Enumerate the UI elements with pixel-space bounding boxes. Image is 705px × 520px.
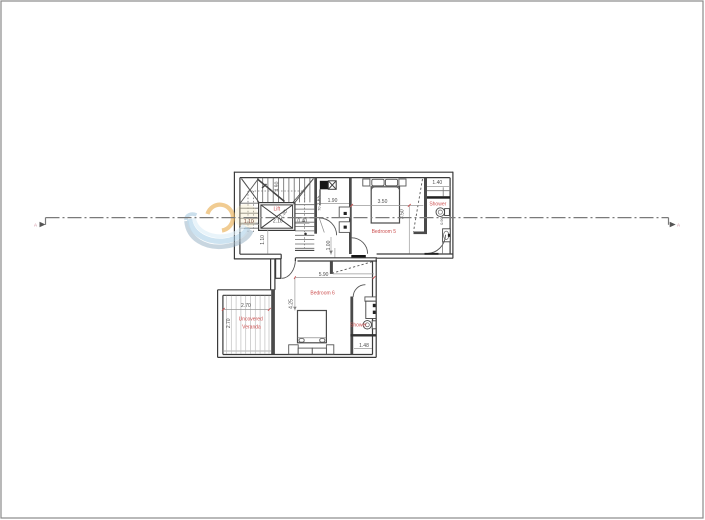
svg-text:Bedroom 5: Bedroom 5 [372,229,397,235]
svg-text:Bedroom 6: Bedroom 6 [310,291,335,297]
svg-text:2.65: 2.65 [316,195,322,205]
svg-text:A: A [34,223,37,228]
svg-text:70: 70 [316,206,321,211]
svg-text:3.50: 3.50 [378,199,388,205]
svg-text:1.00: 1.00 [326,240,332,250]
svg-text:Lift: Lift [273,206,280,212]
svg-text:5.90: 5.90 [319,272,329,278]
svg-text:A: A [677,223,680,228]
svg-text:1.10: 1.10 [244,219,254,225]
svg-text:0.40: 0.40 [297,218,307,224]
svg-text:1.10: 1.10 [260,235,266,245]
svg-text:2.70: 2.70 [226,318,232,328]
svg-text:2.70: 2.70 [241,303,251,309]
svg-text:Shower: Shower [350,322,367,328]
svg-text:4.90: 4.90 [274,181,280,191]
svg-text:4.25: 4.25 [288,299,294,309]
svg-text:Veranda: Veranda [242,325,261,331]
svg-text:Shower: Shower [429,201,446,207]
svg-text:1.40: 1.40 [432,180,442,186]
svg-text:1.90: 1.90 [328,198,338,204]
svg-text:1.48: 1.48 [359,343,369,349]
svg-text:Uncovered: Uncovered [239,316,263,322]
